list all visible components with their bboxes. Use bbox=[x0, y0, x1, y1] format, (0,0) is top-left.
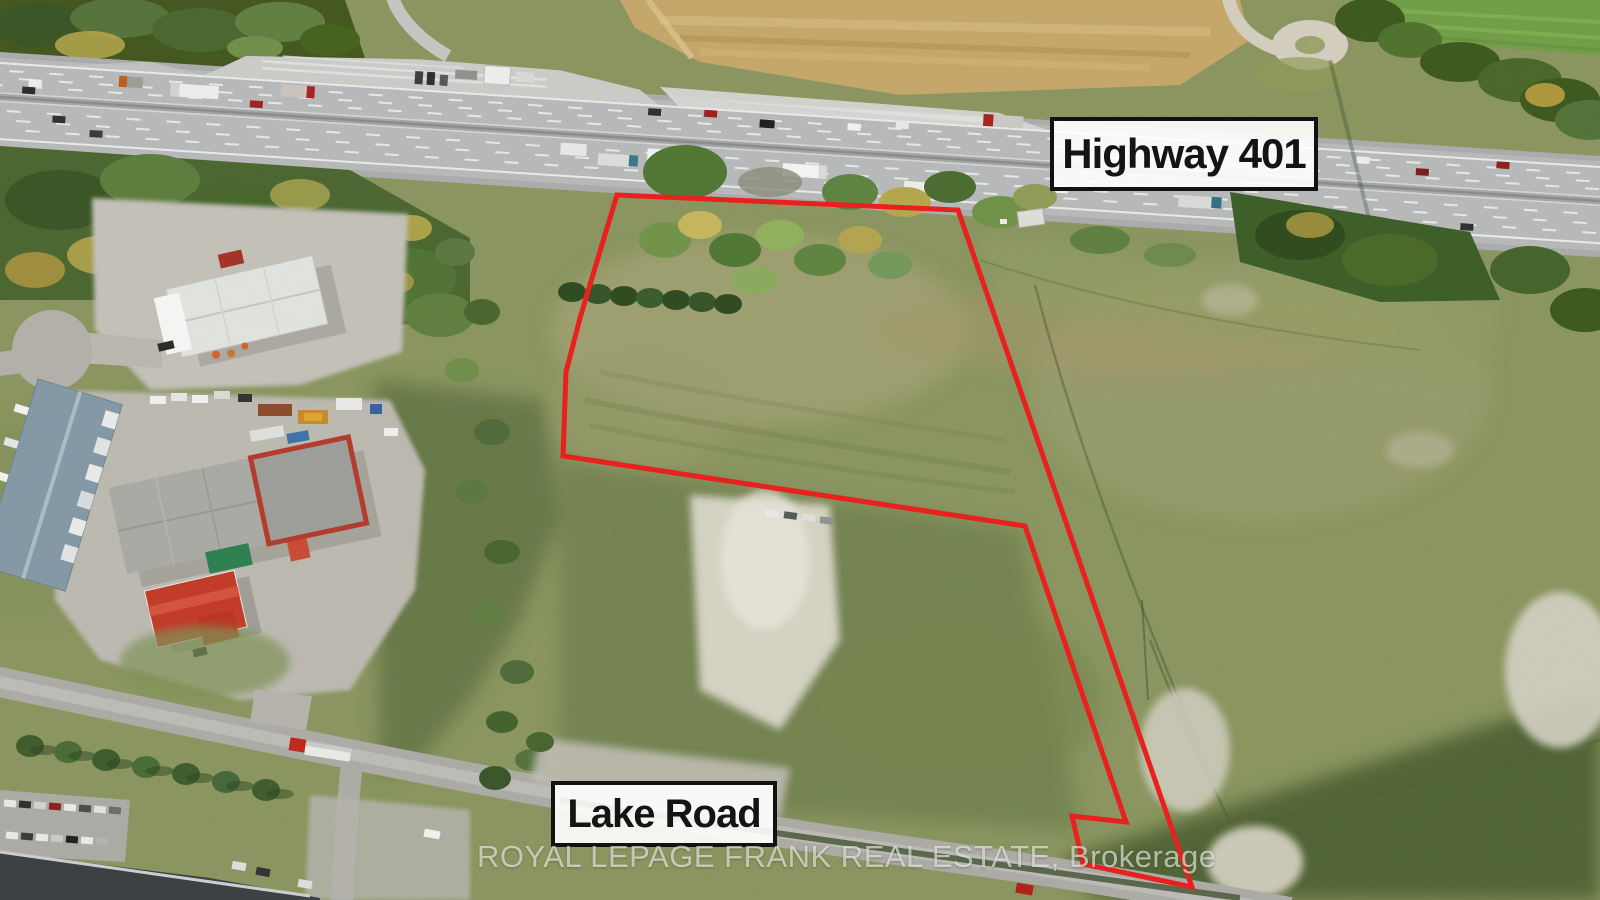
lake-road-label-text: Lake Road bbox=[567, 792, 760, 837]
highway-401-label: Highway 401 bbox=[1050, 117, 1318, 191]
highway-401-label-text: Highway 401 bbox=[1062, 130, 1305, 178]
brokerage-watermark: ROYAL LEPAGE FRANK REAL ESTATE, Brokerag… bbox=[477, 839, 1216, 875]
aerial-listing-photo: Highway 401 Lake Road ROYAL LEPAGE FRANK… bbox=[0, 0, 1600, 900]
grain-overlay bbox=[0, 0, 1600, 900]
aerial-photo-canvas bbox=[0, 0, 1600, 900]
lake-road-label: Lake Road bbox=[551, 781, 777, 847]
